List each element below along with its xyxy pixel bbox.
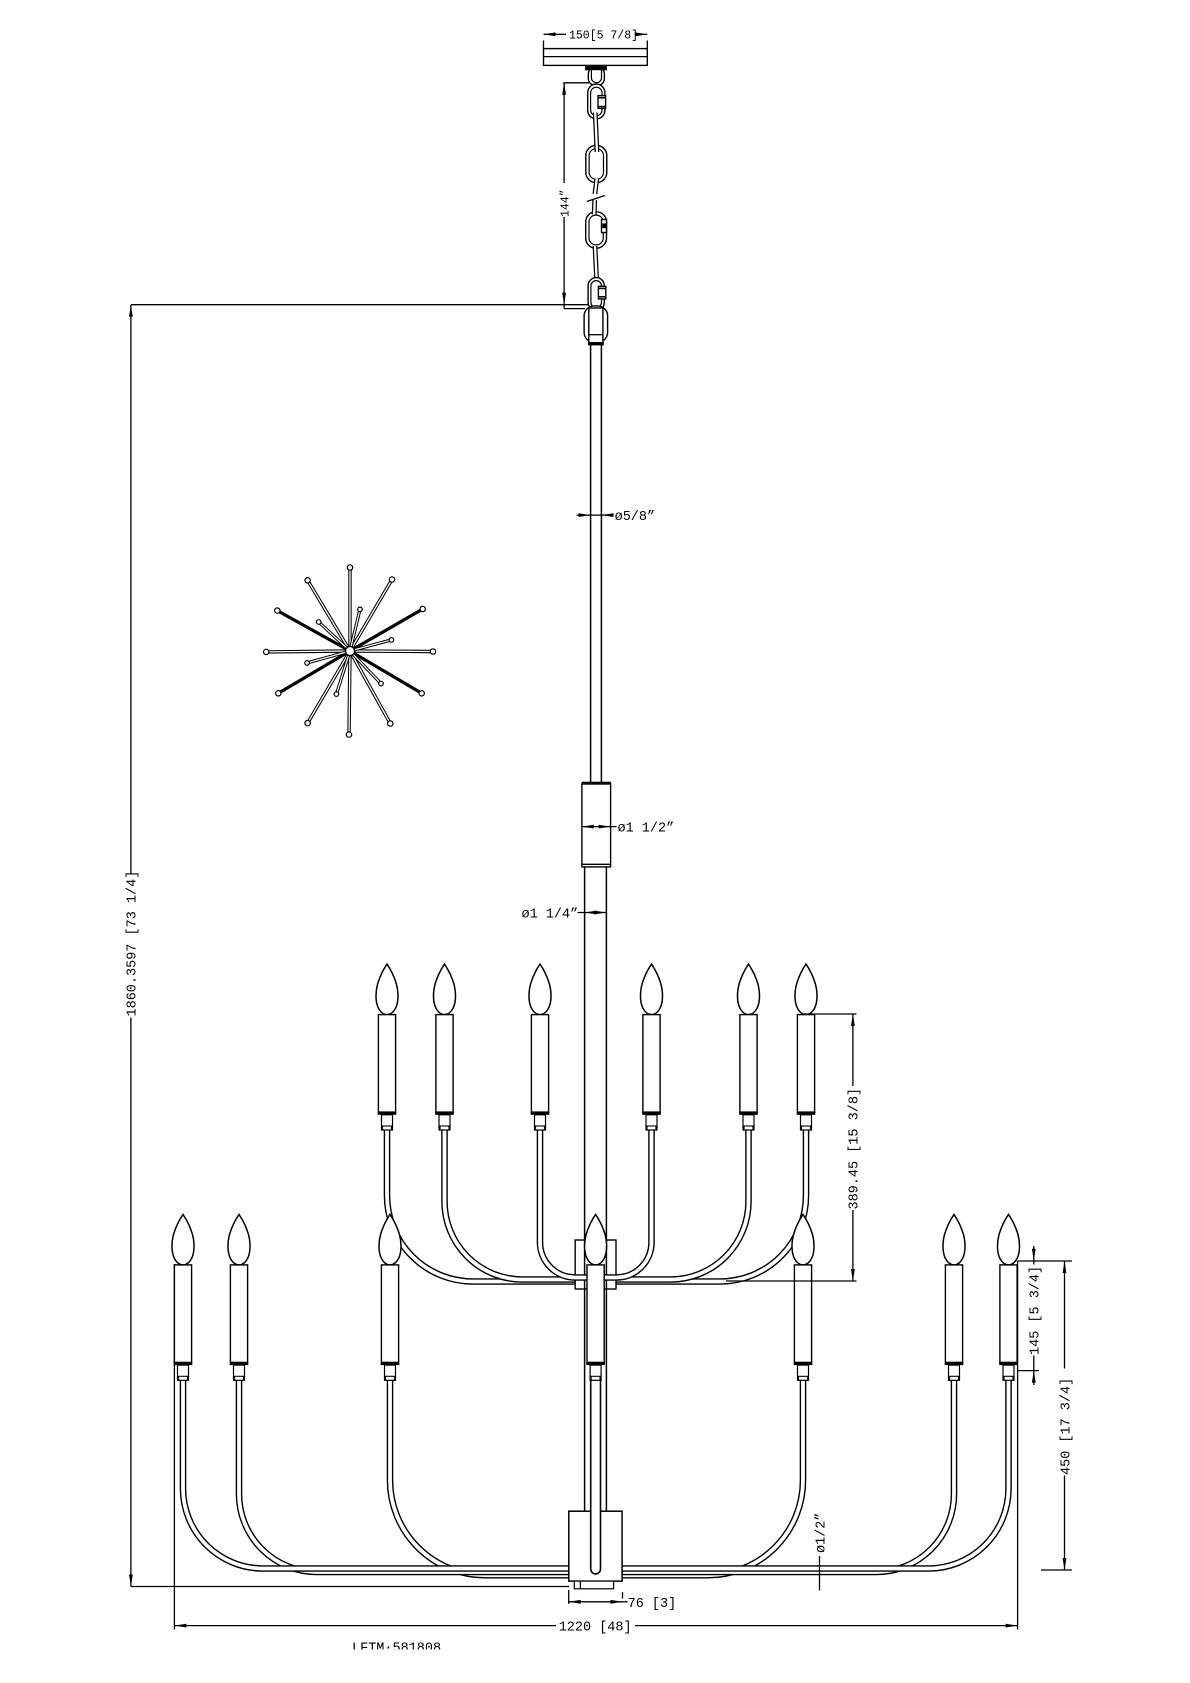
svg-text:144”: 144” — [560, 189, 573, 217]
svg-text:450 [17 3/4]: 450 [17 3/4] — [1059, 1378, 1074, 1475]
svg-text:150[5 7/8]: 150[5 7/8] — [569, 30, 638, 43]
svg-text:ø1 1/2”: ø1 1/2” — [618, 822, 675, 837]
svg-text:145 [5 3/4]: 145 [5 3/4] — [1029, 1266, 1044, 1355]
svg-text:1220 [48]: 1220 [48] — [559, 1620, 632, 1635]
svg-text:ø1 1/4”: ø1 1/4” — [522, 908, 579, 923]
svg-text:389.45 [15 3/8]: 389.45 [15 3/8] — [848, 1088, 863, 1210]
svg-text:76 [3]: 76 [3] — [628, 1597, 677, 1612]
svg-text:ø1/2”: ø1/2” — [814, 1512, 829, 1553]
svg-text:1860.3597 [73 1/4]: 1860.3597 [73 1/4] — [126, 871, 141, 1017]
svg-text:ø5/8”: ø5/8” — [615, 510, 656, 525]
